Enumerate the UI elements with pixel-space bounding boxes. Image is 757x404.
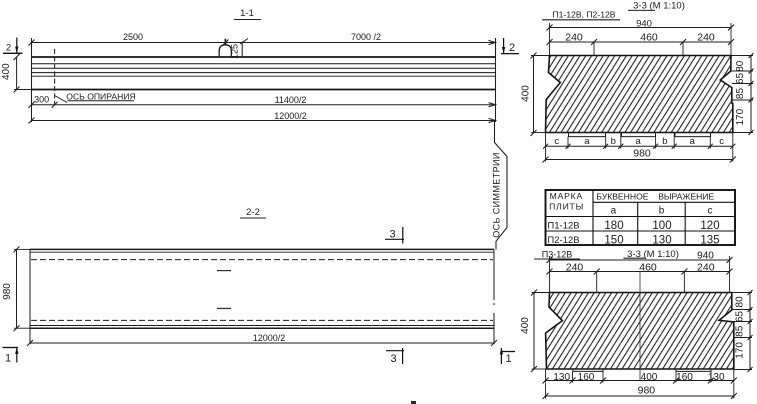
- svg-text:240: 240: [565, 31, 583, 43]
- svg-text:160: 160: [578, 372, 595, 383]
- svg-text:125: 125: [229, 44, 239, 59]
- svg-text:65: 65: [735, 73, 746, 85]
- svg-text:b: b: [659, 206, 665, 217]
- svg-text:160: 160: [676, 372, 693, 383]
- svg-text:85: 85: [735, 88, 746, 100]
- svg-text:a: a: [611, 206, 617, 217]
- svg-text:1-1: 1-1: [240, 8, 254, 19]
- svg-text:12000/2: 12000/2: [274, 111, 307, 121]
- svg-text:c: c: [554, 136, 559, 147]
- svg-text:130: 130: [652, 234, 671, 246]
- svg-text:2500: 2500: [123, 32, 143, 42]
- svg-text:130: 130: [553, 372, 570, 383]
- svg-text:11400/2: 11400/2: [275, 95, 307, 105]
- svg-text:a: a: [636, 136, 642, 147]
- svg-text:П1-12В: П1-12В: [547, 220, 579, 231]
- svg-text:980: 980: [633, 147, 651, 159]
- svg-text:3-3 (М 1:10): 3-3 (М 1:10): [633, 1, 685, 12]
- svg-text:980: 980: [638, 385, 656, 397]
- svg-text:400: 400: [521, 85, 532, 102]
- svg-text:ВЫРАЖЕНИЕ: ВЫРАЖЕНИЕ: [658, 192, 714, 202]
- svg-text:120: 120: [700, 220, 719, 232]
- svg-text:МАРКА: МАРКА: [550, 191, 583, 201]
- svg-text:П3-12В: П3-12В: [542, 249, 573, 259]
- svg-text:2-2: 2-2: [246, 207, 260, 218]
- svg-text:240: 240: [566, 261, 584, 273]
- svg-text:c: c: [708, 206, 713, 217]
- svg-text:240: 240: [697, 261, 715, 273]
- svg-text:ПЛИТЫ: ПЛИТЫ: [549, 202, 584, 212]
- svg-text:85: 85: [735, 325, 746, 337]
- svg-text:135: 135: [700, 234, 719, 246]
- svg-text:b: b: [662, 136, 667, 147]
- svg-text:460: 460: [639, 261, 657, 273]
- svg-text:240: 240: [697, 31, 715, 43]
- svg-text:3: 3: [390, 353, 396, 365]
- svg-text:100: 100: [652, 220, 671, 232]
- svg-text:2: 2: [6, 43, 11, 54]
- svg-text:a: a: [690, 136, 696, 147]
- svg-text:940: 940: [697, 251, 714, 262]
- svg-text:2: 2: [509, 42, 515, 54]
- svg-text:170: 170: [735, 342, 746, 359]
- svg-text:460: 460: [640, 31, 658, 43]
- svg-text:400: 400: [641, 372, 658, 383]
- svg-text:300: 300: [34, 95, 49, 105]
- svg-text:b: b: [611, 136, 616, 147]
- svg-text:180: 180: [604, 220, 623, 232]
- svg-text:БУКВЕННОЕ: БУКВЕННОЕ: [596, 192, 648, 202]
- svg-text:12000/2: 12000/2: [253, 333, 286, 343]
- svg-text:940: 940: [636, 18, 652, 29]
- svg-text:170: 170: [735, 108, 746, 125]
- svg-text:ОСЬ СИММЕТРИИ: ОСЬ СИММЕТРИИ: [491, 152, 501, 238]
- svg-text:150: 150: [604, 234, 623, 246]
- svg-text:980: 980: [2, 283, 13, 300]
- svg-text:400: 400: [520, 317, 531, 334]
- svg-text:П2-12В: П2-12В: [547, 235, 579, 246]
- svg-text:1: 1: [505, 353, 511, 365]
- svg-text:c: c: [719, 136, 724, 147]
- svg-text:80: 80: [735, 60, 746, 72]
- svg-text:ОСЬ ОПИРАНИЯ: ОСЬ ОПИРАНИЯ: [66, 91, 135, 101]
- svg-text:80: 80: [735, 296, 746, 308]
- svg-text:7000 /2: 7000 /2: [351, 32, 381, 42]
- svg-text:П1-12В, П2-12В: П1-12В, П2-12В: [553, 9, 616, 19]
- svg-text:130: 130: [708, 372, 725, 383]
- svg-text:a: a: [584, 136, 590, 147]
- svg-text:65: 65: [735, 311, 746, 323]
- svg-text:1: 1: [5, 353, 11, 365]
- svg-text:400: 400: [1, 63, 12, 80]
